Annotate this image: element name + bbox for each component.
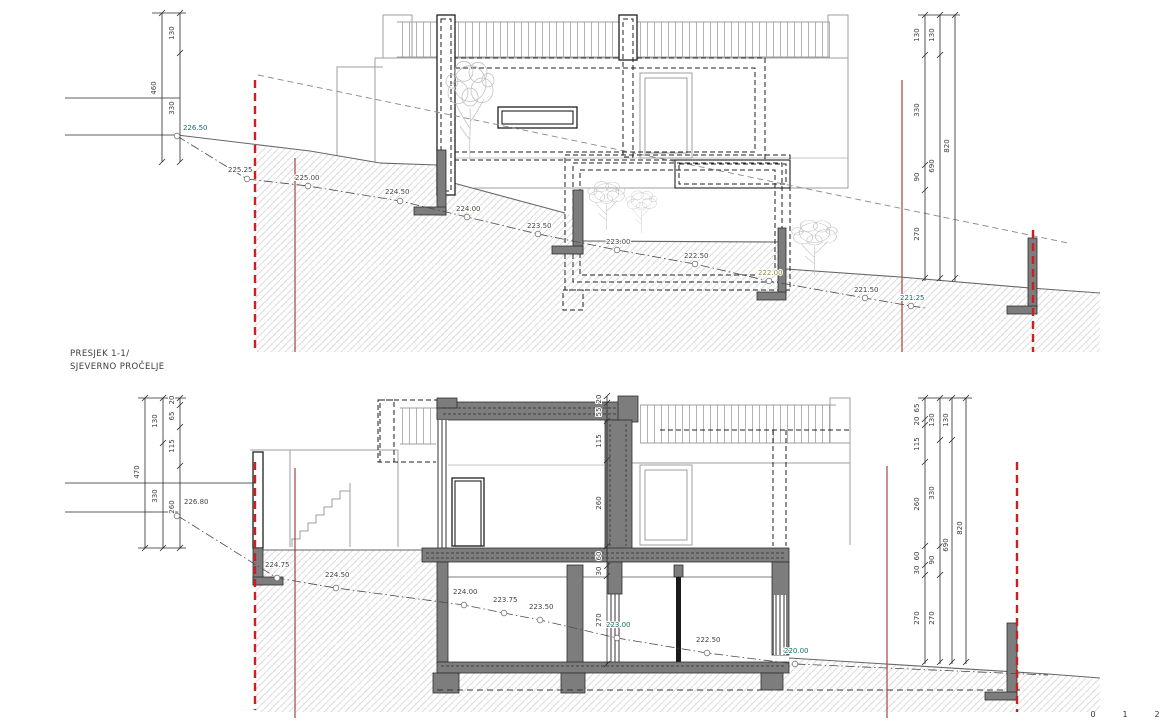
- chimney-right: [828, 15, 848, 58]
- spot-elevation-label: 224.50: [325, 571, 350, 579]
- spot-elevation-marker: [614, 247, 620, 253]
- dimension-label: 90: [913, 173, 921, 182]
- dimension-label: 260: [913, 497, 921, 510]
- dimension-label: 260: [168, 500, 176, 513]
- retaining-wall: [573, 190, 583, 254]
- dimension-label: 470: [133, 465, 141, 478]
- dimension-label: 130: [913, 28, 921, 41]
- spot-elevation-marker: [333, 585, 339, 591]
- retaining-wall-foot: [985, 692, 1017, 700]
- foundation-slab: [437, 662, 789, 673]
- foundation-pad: [433, 673, 459, 693]
- spot-elevation-marker: [766, 278, 772, 284]
- title-line-2: SJEVERNO PROČELJE: [70, 360, 165, 372]
- roof-dashed-lines: [660, 430, 850, 546]
- spot-elevation-label: 222.50: [696, 636, 721, 644]
- dimension-label: 115: [168, 439, 176, 452]
- dimension-label: 130: [151, 414, 159, 427]
- tree-icon: [588, 182, 625, 230]
- dimension-chain-bottom-left: [65, 395, 256, 551]
- parapet: [618, 396, 638, 422]
- dimension-label: 60: [595, 552, 603, 561]
- tree-icon: [626, 191, 657, 233]
- upper-wall-right: [605, 420, 632, 550]
- spot-elevation-marker: [174, 513, 180, 519]
- roof-railing-balusters: [397, 22, 830, 57]
- bottom-section-drawing: 4701303302065115260205511526060302706520…: [65, 393, 1100, 718]
- spot-elevation-marker: [464, 214, 470, 220]
- dimension-label: 20: [913, 417, 921, 426]
- staircase: [292, 491, 350, 547]
- dimension-label: 330: [168, 101, 176, 114]
- architectural-section-sheet: 46013033013033090270130690820 226.50225.…: [0, 0, 1170, 724]
- dimension-label: 65: [913, 404, 921, 413]
- spot-elevation-marker: [305, 183, 311, 189]
- dimension-label: 270: [595, 613, 603, 626]
- spot-elevation-label: 226.50: [183, 124, 208, 132]
- spot-elevation-marker: [501, 610, 507, 616]
- roof-railing-balusters: [640, 405, 836, 443]
- spot-elevation-marker: [692, 261, 698, 267]
- dimension-label: 270: [928, 611, 936, 624]
- spot-elevation-label: 221.25: [900, 294, 925, 302]
- spot-elevation-label: 224.75: [265, 561, 290, 569]
- facade-window-inner: [645, 78, 687, 153]
- dimension-label: 330: [913, 103, 921, 116]
- rear-house-elevation: [337, 15, 848, 188]
- spot-elevation-marker: [792, 661, 798, 667]
- top-section-drawing: 46013033013033090270130690820 226.50225.…: [65, 10, 1100, 352]
- dimension-label: 90: [928, 556, 936, 565]
- dimension-label: 60: [913, 552, 921, 561]
- dimension-label: 55: [595, 408, 603, 417]
- dimension-label: 330: [151, 489, 159, 502]
- dimension-label: 115: [595, 434, 603, 447]
- dimension-label: 460: [150, 81, 158, 94]
- dimension-label: 20: [595, 395, 603, 404]
- level-reference-lines: [65, 98, 180, 135]
- spot-elevation-label: 223.75: [493, 596, 518, 604]
- spot-elevation-label: 225.25: [228, 166, 253, 174]
- roof-slab: [437, 402, 633, 420]
- dimension-label: 330: [928, 486, 936, 499]
- dimension-label: 270: [913, 611, 921, 624]
- basement-wall-left: [437, 562, 448, 662]
- level-reference-lines: [65, 483, 256, 512]
- scale-tick-0: 0: [1090, 710, 1095, 719]
- dimension-label: 260: [595, 496, 603, 509]
- spot-elevation-label: 220.00: [784, 647, 809, 655]
- dimension-label: 20: [168, 396, 176, 405]
- spot-elevation-marker: [535, 231, 541, 237]
- balcony-railing: [400, 408, 437, 444]
- spot-elevation-marker: [174, 133, 180, 139]
- spot-elevation-label: 223.00: [606, 238, 631, 246]
- letterbox-window: [498, 107, 577, 128]
- spot-elevation-label: 223.00: [606, 621, 631, 629]
- dimension-label: 130: [942, 413, 950, 426]
- basement-wall-mid: [567, 565, 583, 665]
- dimension-label: 130: [928, 28, 936, 41]
- retaining-wall: [437, 150, 446, 215]
- spot-elevation-label: 225.00: [295, 174, 320, 182]
- spot-elevation-label: 224.00: [456, 205, 481, 213]
- scale-tick-2: 2: [1154, 710, 1159, 719]
- facade-window: [640, 73, 692, 158]
- spot-elevation-label: 223.50: [529, 603, 554, 611]
- section-drawing-svg: 46013033013033090270130690820 226.50225.…: [0, 0, 1170, 724]
- spot-elevation-label: 222.50: [684, 252, 709, 260]
- retaining-wall-foot: [757, 292, 786, 300]
- spot-elevation-label: 221.50: [854, 286, 879, 294]
- terrain-hatch-top: [177, 135, 1100, 352]
- dimension-label: 30: [913, 566, 921, 575]
- spot-elevation-label: 226.80: [184, 498, 209, 506]
- dimension-label: 820: [943, 139, 951, 152]
- basement-column: [676, 577, 681, 662]
- retaining-wall-foot: [552, 246, 583, 254]
- dimension-label: 30: [595, 567, 603, 576]
- title-line-1: PRESJEK 1-1/: [70, 349, 130, 359]
- dimension-label: 130: [928, 413, 936, 426]
- section-post-right: [619, 15, 637, 60]
- dimension-label: 65: [168, 412, 176, 421]
- spot-elevation-marker: [908, 303, 914, 309]
- foundation-pad: [761, 673, 783, 690]
- dimension-label: 130: [168, 26, 176, 39]
- interior-door: [452, 478, 484, 546]
- floor-slab: [422, 548, 789, 562]
- spot-elevation-marker: [537, 617, 543, 623]
- scale-bar: 0 1 2: [1090, 710, 1159, 719]
- dimension-label: 115: [913, 437, 921, 450]
- spot-elevation-label: 222.00: [758, 269, 783, 277]
- dimension-label: 270: [913, 227, 921, 240]
- tree-icon: [792, 220, 838, 275]
- spot-elevation-marker: [397, 198, 403, 204]
- retaining-wall: [1007, 623, 1017, 700]
- spot-elevation-label: 224.00: [453, 588, 478, 596]
- spot-elevation-marker: [274, 575, 280, 581]
- spot-elevation-marker: [614, 635, 620, 641]
- spot-elevation-marker: [461, 602, 467, 608]
- spot-elevation-marker: [862, 295, 868, 301]
- facade-window: [640, 465, 692, 545]
- scale-tick-1: 1: [1122, 710, 1127, 719]
- spot-elevation-marker: [704, 650, 710, 656]
- neighbor-outline: [337, 67, 383, 160]
- spot-elevation-marker: [244, 176, 250, 182]
- dimension-label: 820: [956, 521, 964, 534]
- dimension-label: 690: [942, 538, 950, 551]
- dimension-label: 690: [928, 159, 936, 172]
- spot-elevation-label: 224.50: [385, 188, 410, 196]
- dimension-chain-top-right: [918, 12, 960, 281]
- spot-elevation-label: 223.50: [527, 222, 552, 230]
- drawing-title: PRESJEK 1-1/ SJEVERNO PROČELJE: [70, 349, 165, 372]
